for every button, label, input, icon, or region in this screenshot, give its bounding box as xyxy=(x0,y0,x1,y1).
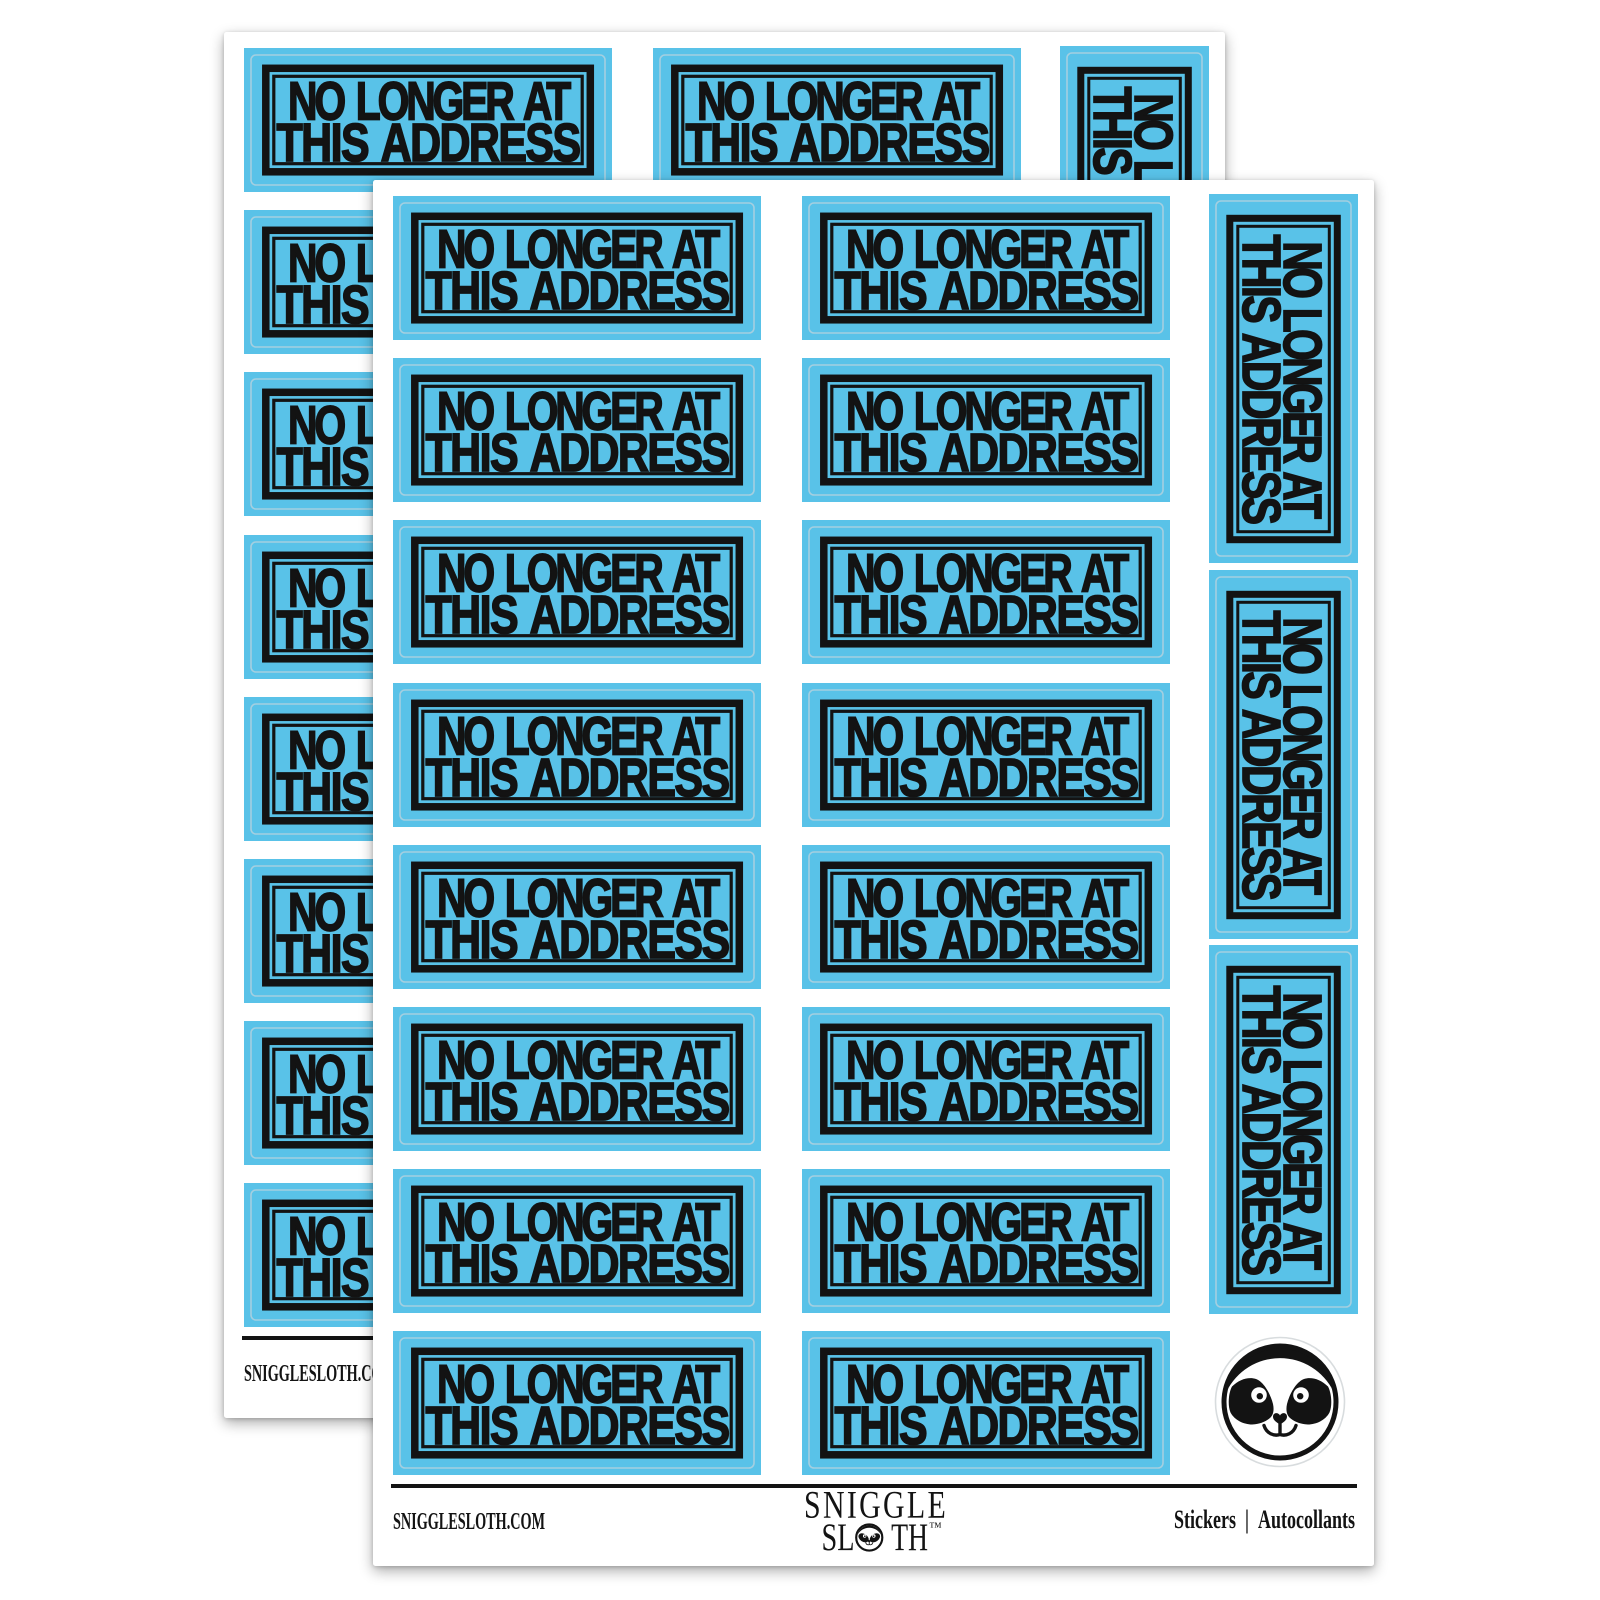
svg-text:TH: TH xyxy=(891,1515,928,1559)
svg-text:SNIGGLESLOTH.COM: SNIGGLESLOTH.COM xyxy=(393,1509,545,1535)
svg-text:Stickers | Autocollants: Stickers | Autocollants xyxy=(1174,1505,1355,1534)
svg-text:SL: SL xyxy=(821,1515,854,1559)
svg-text:™: ™ xyxy=(929,1519,942,1534)
